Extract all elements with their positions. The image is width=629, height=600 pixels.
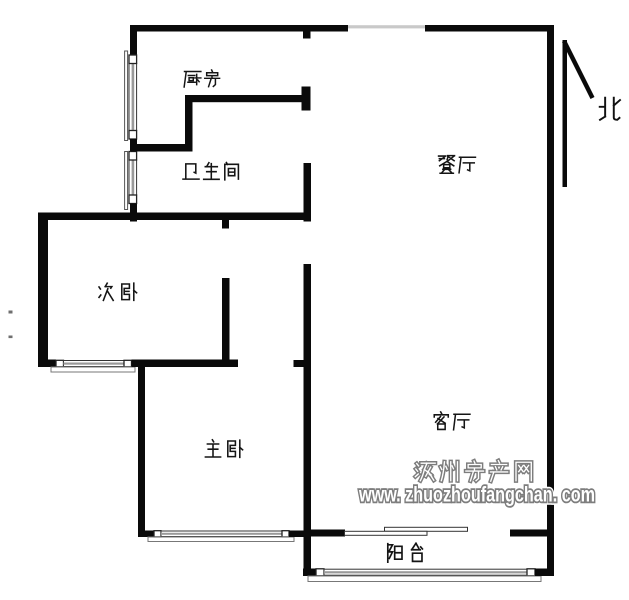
svg-text:www. zhuozhoufangchan. com: www. zhuozhoufangchan. com — [358, 484, 595, 507]
